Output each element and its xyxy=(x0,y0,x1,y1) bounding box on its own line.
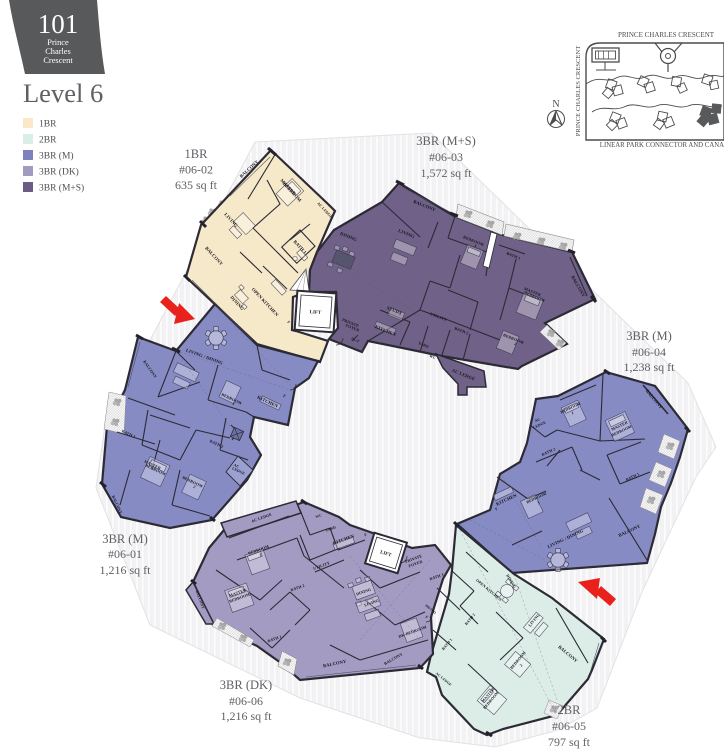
svg-text:2BR: 2BR xyxy=(558,703,582,717)
svg-text:#06-02: #06-02 xyxy=(179,163,213,177)
svg-text:N: N xyxy=(552,99,559,110)
svg-text:3BR (DK): 3BR (DK) xyxy=(39,167,79,178)
svg-text:LIFT: LIFT xyxy=(309,310,322,316)
svg-text:#06-06: #06-06 xyxy=(229,694,263,708)
svg-text:Crescent: Crescent xyxy=(43,56,73,65)
svg-text:3BR (DK): 3BR (DK) xyxy=(220,678,272,692)
svg-text:635 sq ft: 635 sq ft xyxy=(175,178,218,192)
svg-text:1BR: 1BR xyxy=(185,147,209,161)
svg-text:Level 6: Level 6 xyxy=(23,78,103,108)
svg-text:3BR (M): 3BR (M) xyxy=(626,329,672,343)
svg-text:3BR (M): 3BR (M) xyxy=(39,151,74,162)
svg-text:#06-03: #06-03 xyxy=(429,150,463,164)
svg-text:1,216 sq ft: 1,216 sq ft xyxy=(100,563,152,577)
svg-text:1BR: 1BR xyxy=(39,120,57,130)
svg-text:797 sq ft: 797 sq ft xyxy=(548,735,591,749)
svg-text:3BR (M+S): 3BR (M+S) xyxy=(39,183,84,194)
svg-text:1,238 sq ft: 1,238 sq ft xyxy=(624,360,676,374)
svg-text:1,572 sq ft: 1,572 sq ft xyxy=(421,166,473,180)
svg-text:LINEAR PARK CONNECTOR AND CANA: LINEAR PARK CONNECTOR AND CANAL xyxy=(600,142,724,149)
svg-text:#06-04: #06-04 xyxy=(632,345,666,359)
svg-text:3BR (M+S): 3BR (M+S) xyxy=(416,134,476,148)
svg-text:#06-01: #06-01 xyxy=(108,547,142,561)
svg-text:101: 101 xyxy=(38,9,79,39)
svg-text:3BR (M): 3BR (M) xyxy=(102,532,148,546)
svg-text:Prince: Prince xyxy=(47,38,69,47)
svg-text:PRINCE CHARLES CRESCENT: PRINCE CHARLES CRESCENT xyxy=(575,46,582,137)
svg-text:2BR: 2BR xyxy=(39,136,57,146)
svg-text:#06-05: #06-05 xyxy=(552,719,586,733)
svg-text:Charles: Charles xyxy=(45,47,71,56)
svg-text:PRINCE CHARLES CRESCENT: PRINCE CHARLES CRESCENT xyxy=(618,31,715,39)
svg-text:1,216 sq ft: 1,216 sq ft xyxy=(221,709,273,723)
